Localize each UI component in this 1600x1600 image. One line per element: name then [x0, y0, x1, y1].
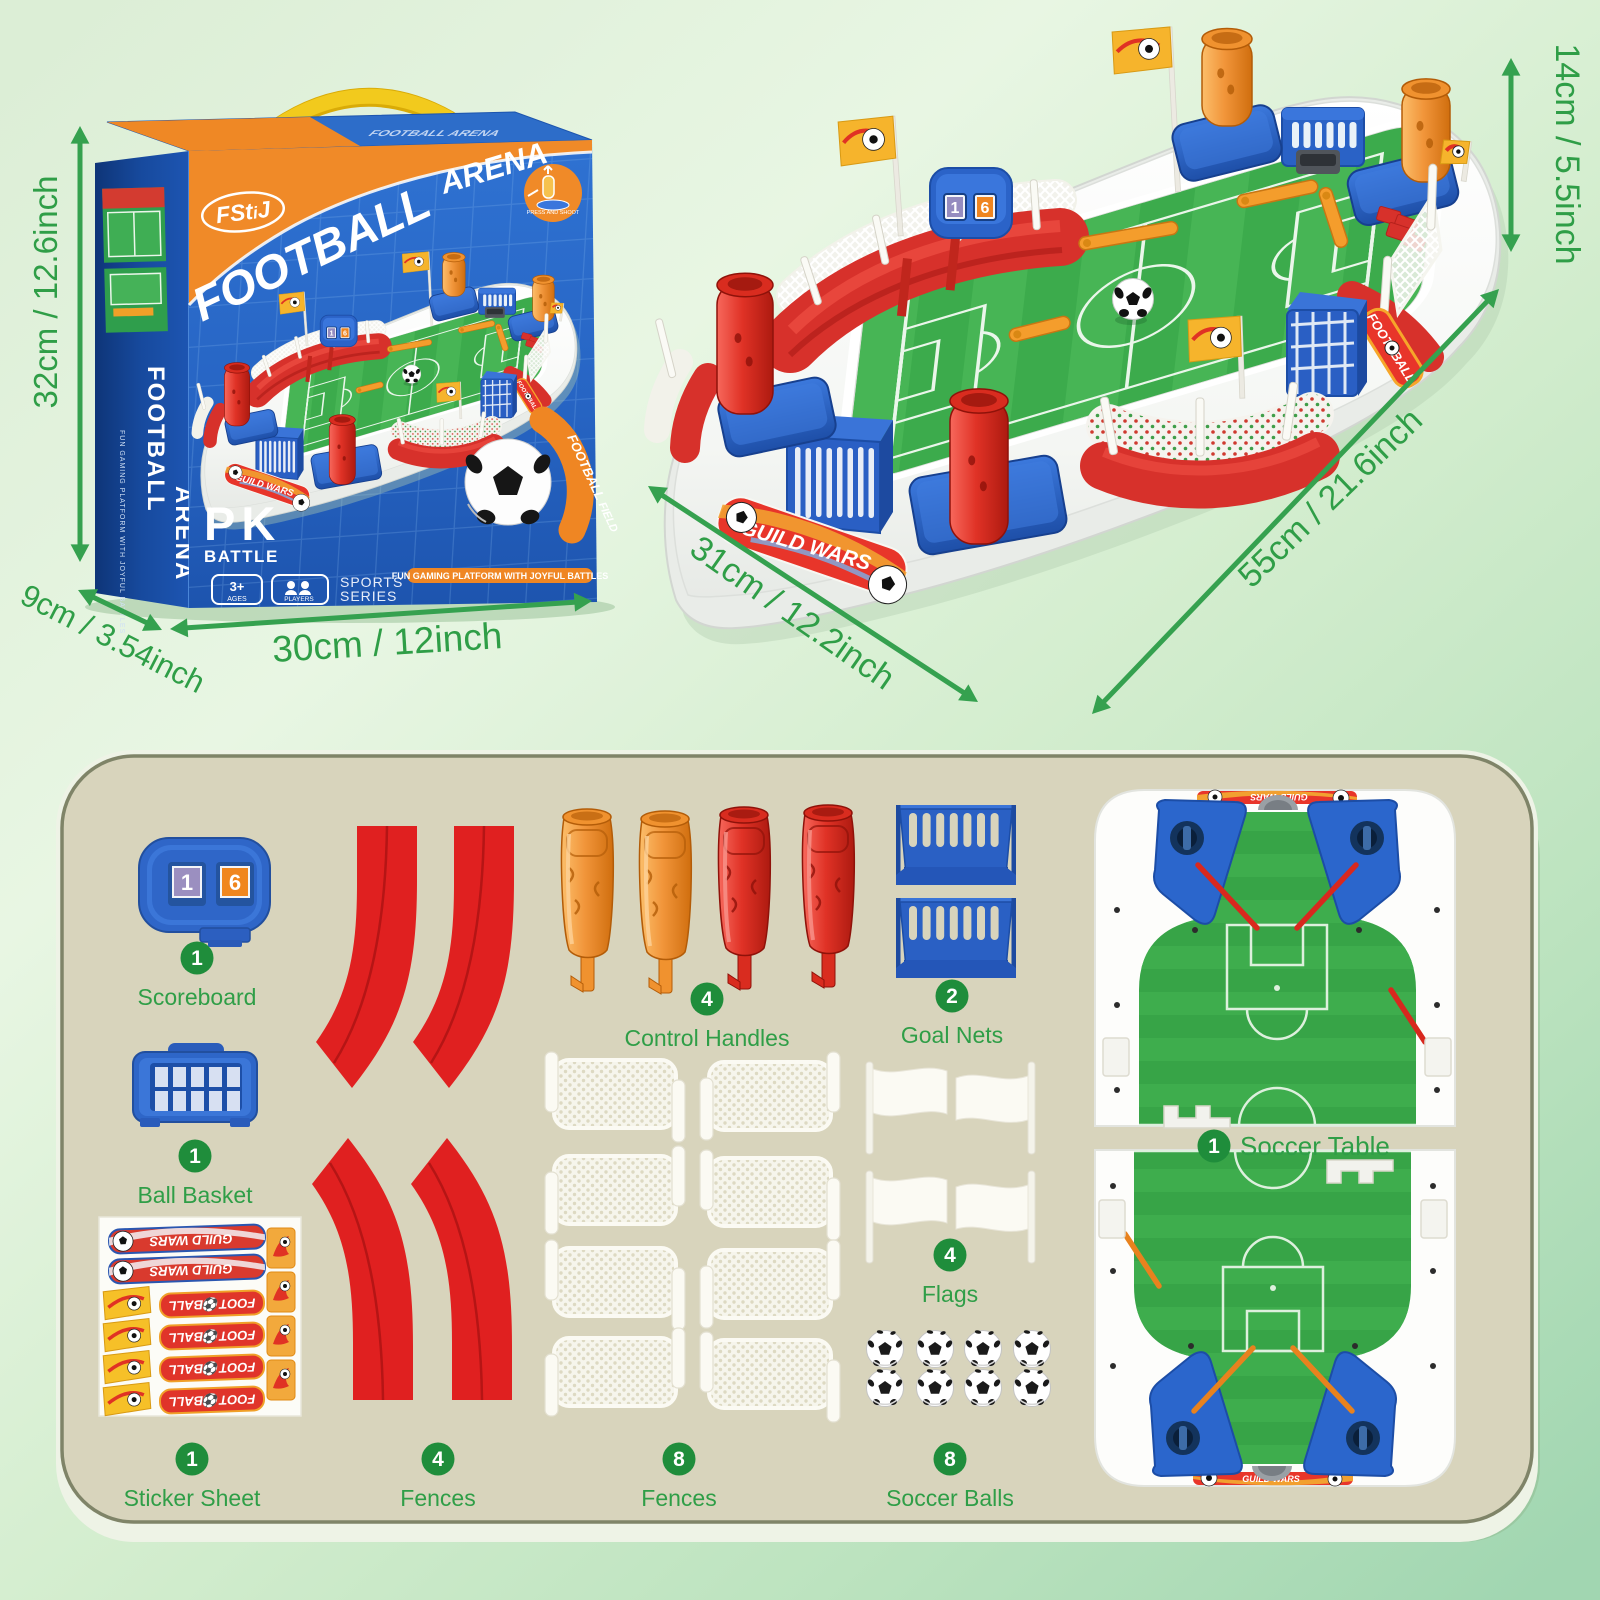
- svg-text:Soccer Balls: Soccer Balls: [886, 1485, 1014, 1511]
- svg-text:1: 1: [186, 1448, 198, 1471]
- svg-text:6: 6: [229, 870, 241, 895]
- svg-text:PK: PK: [204, 497, 281, 550]
- svg-text:FOOT⚽BALL: FOOT⚽BALL: [168, 1359, 255, 1377]
- svg-text:FOOT⚽BALL: FOOT⚽BALL: [168, 1295, 255, 1313]
- svg-text:FOOT⚽BALL: FOOT⚽BALL: [168, 1327, 255, 1345]
- svg-text:Fences: Fences: [641, 1485, 716, 1511]
- svg-text:FOOTBALL ARENA: FOOTBALL ARENA: [367, 129, 503, 139]
- svg-text:4: 4: [701, 988, 713, 1011]
- svg-text:1: 1: [1208, 1135, 1220, 1158]
- svg-text:Flags: Flags: [922, 1281, 978, 1307]
- svg-text:3+: 3+: [230, 579, 245, 594]
- svg-text:AGES: AGES: [227, 596, 247, 603]
- svg-text:8: 8: [944, 1448, 956, 1471]
- svg-text:Sticker Sheet: Sticker Sheet: [124, 1485, 261, 1511]
- svg-text:Soccer Table: Soccer Table: [1240, 1131, 1390, 1161]
- svg-text:FUN GAMING PLATFORM WITH JOYFU: FUN GAMING PLATFORM WITH JOYFUL BATTLES: [392, 571, 608, 581]
- svg-text:Scoreboard: Scoreboard: [138, 984, 257, 1010]
- svg-text:4: 4: [944, 1244, 956, 1267]
- svg-text:Control Handles: Control Handles: [625, 1025, 790, 1051]
- svg-text:8: 8: [673, 1448, 685, 1471]
- svg-text:1: 1: [189, 1145, 201, 1168]
- svg-text:Goal Nets: Goal Nets: [901, 1022, 1003, 1048]
- svg-text:SERIES: SERIES: [340, 588, 397, 604]
- svg-text:PRESS AND SHOOT: PRESS AND SHOOT: [527, 210, 580, 216]
- svg-text:2: 2: [946, 985, 958, 1008]
- svg-text:FUN GAMING PLATFORM WITH JOYFU: FUN GAMING PLATFORM WITH JOYFUL BATTLES: [118, 430, 125, 634]
- svg-text:1: 1: [181, 870, 193, 895]
- svg-text:FOOTBALL: FOOTBALL: [142, 366, 169, 513]
- svg-text:PLAYERS: PLAYERS: [284, 596, 314, 603]
- svg-text:GUILD WARS: GUILD WARS: [149, 1231, 233, 1249]
- svg-text:14cm / 5.5inch: 14cm / 5.5inch: [1548, 43, 1586, 264]
- svg-text:GUILD WARS: GUILD WARS: [149, 1261, 233, 1279]
- svg-text:Ball Basket: Ball Basket: [137, 1182, 253, 1208]
- svg-text:4: 4: [432, 1448, 444, 1471]
- svg-text:BATTLE: BATTLE: [204, 547, 279, 566]
- svg-text:Fences: Fences: [400, 1485, 475, 1511]
- svg-text:FOOT⚽BALL: FOOT⚽BALL: [168, 1391, 255, 1409]
- svg-text:32cm / 12.6inch: 32cm / 12.6inch: [27, 176, 64, 409]
- svg-text:1: 1: [191, 947, 203, 970]
